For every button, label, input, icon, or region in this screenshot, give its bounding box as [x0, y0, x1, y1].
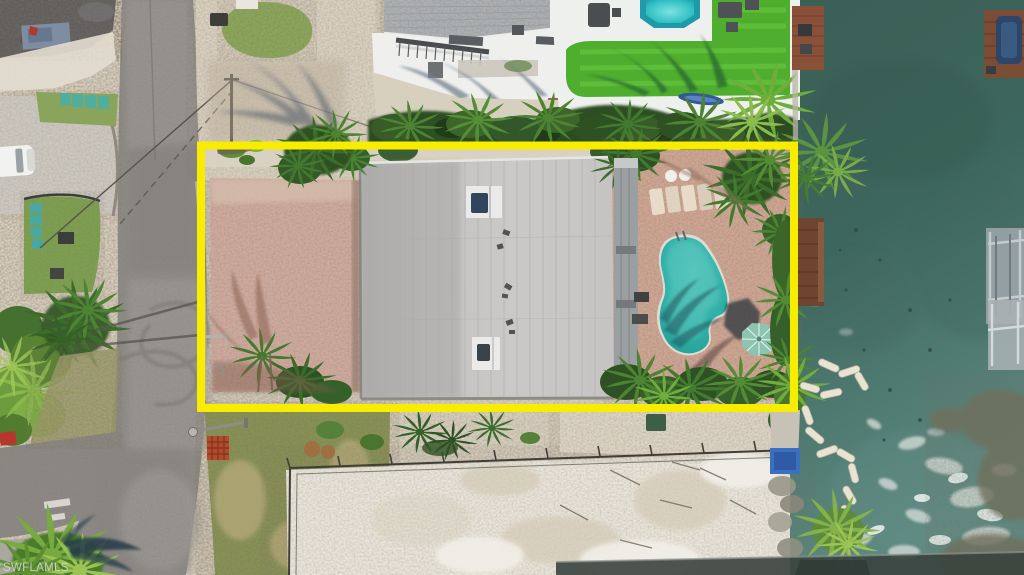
svg-text:SWFLAMLS: SWFLAMLS	[3, 562, 69, 574]
